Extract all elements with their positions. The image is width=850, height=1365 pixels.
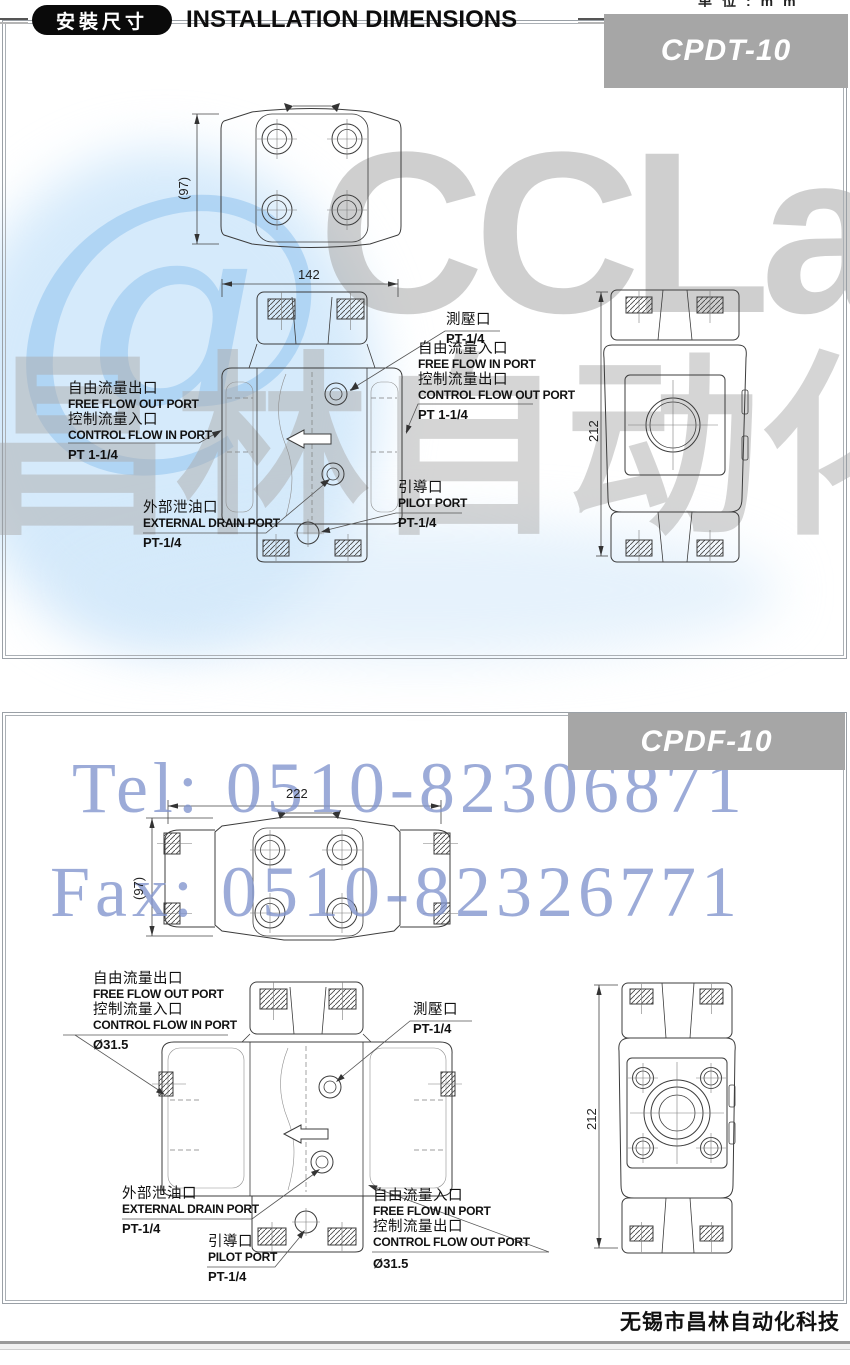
label-cn-line: 自由流量入口 [373, 1188, 530, 1205]
label-cn-line: 引導口 [208, 1234, 277, 1251]
label-cn-line: 控制流量出口 [373, 1219, 530, 1236]
label-cn-line: 測壓口 [446, 312, 491, 329]
watermark-fax: Fax: 0510-82326771 [50, 856, 742, 928]
label-port-size: PT 1-1/4 [68, 448, 212, 462]
label-en-line: CONTROL FLOW IN PORT [68, 429, 212, 443]
label-test-port-s2: 測壓口 PT-1/4 [413, 1002, 458, 1036]
model-tab-cpdf: CPDF-10 [568, 713, 845, 770]
header-rule-right [578, 18, 604, 24]
label-cn-line: 控制流量出口 [418, 372, 575, 389]
label-port-size: PT 1-1/4 [418, 408, 575, 422]
model-tab-cpdt: CPDT-10 [604, 14, 848, 88]
section-badge: 安裝尺寸 [32, 5, 172, 35]
label-en-line: PILOT PORT [208, 1251, 277, 1265]
label-cn-line: 測壓口 [413, 1002, 458, 1019]
label-drain-port-s1: 外部泄油口 EXTERNAL DRAIN PORT PT-1/4 [143, 500, 280, 550]
footer-company: 无锡市昌林自动化科技 [620, 1306, 840, 1336]
label-free-flow-in-s2: 自由流量入口 FREE FLOW IN PORT 控制流量出口 CONTROL … [373, 1188, 530, 1271]
footer-rule [0, 1341, 850, 1350]
unit-note-text: 单位:mm [698, 0, 806, 7]
label-cn-line: 自由流量出口 [68, 381, 212, 398]
label-en-line: CONTROL FLOW IN PORT [93, 1019, 237, 1033]
label-en-line: FREE FLOW OUT PORT [93, 988, 237, 1002]
label-free-flow-in-s1: 自由流量入口 FREE FLOW IN PORT 控制流量出口 CONTROL … [418, 341, 575, 422]
label-en-line: FREE FLOW IN PORT [418, 358, 575, 372]
label-pilot-port-s1: 引導口 PILOT PORT PT-1/4 [398, 480, 467, 530]
label-en-line: FREE FLOW OUT PORT [68, 398, 212, 412]
label-cn-line: 控制流量入口 [68, 412, 212, 429]
label-en-line: FREE FLOW IN PORT [373, 1205, 530, 1219]
label-cn-line: 自由流量出口 [93, 971, 237, 988]
label-cn-line: 引導口 [398, 480, 467, 497]
dim-depth-text-s2: (97) [131, 877, 146, 900]
page-title: INSTALLATION DIMENSIONS [186, 6, 517, 34]
label-drain-port-s2: 外部泄油口 EXTERNAL DRAIN PORT PT-1/4 [122, 1186, 259, 1236]
label-port-size: PT-1/4 [413, 1022, 458, 1036]
cpdt-section-panel [2, 20, 847, 659]
label-en-line: EXTERNAL DRAIN PORT [122, 1203, 259, 1217]
dim-width-text-s2: 222 [286, 786, 308, 801]
label-port-size: Ø31.5 [373, 1257, 530, 1271]
dim-height-text-s2: 212 [584, 1108, 599, 1130]
label-en-line: PILOT PORT [398, 497, 467, 511]
label-en-line: EXTERNAL DRAIN PORT [143, 517, 280, 531]
dim-height-text-s1: 212 [586, 420, 601, 442]
label-cn-line: 外部泄油口 [122, 1186, 259, 1203]
label-port-size: PT-1/4 [143, 536, 280, 550]
label-cn-line: 自由流量入口 [418, 341, 575, 358]
label-cn-line: 控制流量入口 [93, 1002, 237, 1019]
label-en-line: CONTROL FLOW OUT PORT [373, 1236, 530, 1250]
label-port-size: PT-1/4 [208, 1270, 277, 1284]
catalog-page: 单位:mm 安裝尺寸 INSTALLATION DIMENSIONS @ CCL… [0, 0, 850, 1365]
label-free-flow-out-s2: 自由流量出口 FREE FLOW OUT PORT 控制流量入口 CONTROL… [93, 971, 237, 1052]
dim-width-text-s1: 142 [298, 267, 320, 282]
label-port-size: PT-1/4 [398, 516, 467, 530]
label-en-line: CONTROL FLOW OUT PORT [418, 389, 575, 403]
dim-depth-text-s1: (97) [176, 177, 191, 200]
label-cn-line: 外部泄油口 [143, 500, 280, 517]
unit-note-cropped: 单位:mm [698, 0, 848, 7]
label-port-size: Ø31.5 [93, 1038, 237, 1052]
header-rule-left [0, 18, 28, 24]
label-free-flow-out-s1: 自由流量出口 FREE FLOW OUT PORT 控制流量入口 CONTROL… [68, 381, 212, 462]
label-pilot-port-s2: 引導口 PILOT PORT PT-1/4 [208, 1234, 277, 1284]
